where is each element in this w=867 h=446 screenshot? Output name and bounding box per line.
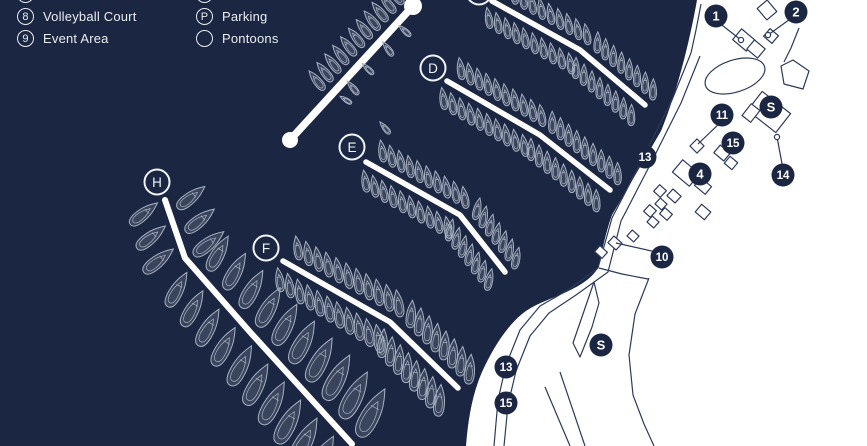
marker-2-1: 2 — [785, 1, 808, 24]
building — [695, 204, 711, 219]
legend-pontoon-icon — [196, 30, 213, 47]
building — [627, 230, 639, 242]
legend-label: Event Area — [43, 31, 109, 46]
marker-14-7: 14 — [772, 164, 795, 187]
pontoon-letter: F — [262, 241, 270, 256]
roundabout — [701, 51, 770, 101]
leader-dot — [738, 37, 743, 42]
leader-line — [616, 243, 656, 252]
legend-column-left: 8 Volleyball Court 9 Event Area — [17, 0, 137, 50]
legend-item-event-area: 9 Event Area — [17, 28, 137, 49]
marker-4-6: 4 — [689, 163, 712, 186]
legend-symbol-partial-icon — [196, 0, 213, 3]
pontoon-letter: E — [347, 140, 356, 155]
marker-1-0: 1 — [705, 5, 728, 28]
pontoon-letter: H — [152, 175, 162, 190]
road — [629, 278, 654, 446]
marker-13-5: 13 — [634, 146, 657, 169]
marker-label: 1 — [712, 9, 719, 24]
pontoon-label-D: D — [421, 56, 446, 81]
road — [545, 387, 570, 446]
building — [647, 216, 659, 228]
building — [644, 205, 657, 218]
pier-end-dolphin — [282, 132, 298, 148]
marker-label: 11 — [716, 110, 729, 122]
legend-number-icon: 8 — [17, 8, 34, 25]
pontoon-label-F: F — [254, 236, 279, 261]
marker-15-11: 15 — [495, 392, 518, 415]
marker-label: 10 — [656, 252, 669, 264]
marker-label: 14 — [777, 170, 790, 182]
pontoon-label-H: H — [145, 170, 170, 195]
building — [608, 236, 622, 250]
legend-item-volleyball-court: 8 Volleyball Court — [17, 6, 137, 27]
building — [781, 60, 809, 89]
pontoon-letter: D — [428, 61, 438, 76]
legend-label: Parking — [222, 9, 267, 24]
marina-map-svg: 1211S151341410S1315DEFH — [0, 0, 867, 446]
marker-label: S — [767, 100, 776, 115]
leader-dot — [765, 32, 770, 37]
building — [654, 185, 667, 198]
legend-label: Pontoons — [222, 31, 279, 46]
marker-15-4: 15 — [722, 132, 745, 155]
marker-label: 15 — [727, 138, 740, 150]
legend-item-partial — [17, 0, 137, 5]
marker-label: 4 — [696, 167, 704, 182]
legend-column-right: P Parking Pontoons — [196, 0, 279, 50]
pontoon-label-E: E — [340, 135, 365, 160]
legend-symbol-partial-icon — [17, 0, 34, 3]
marker-label: S — [597, 338, 606, 353]
legend-item-partial — [196, 0, 279, 5]
marker-13-10: 13 — [495, 356, 518, 379]
legend-item-pontoons: Pontoons — [196, 28, 279, 49]
legend-label: Volleyball Court — [43, 9, 137, 24]
marker-S-3: S — [760, 96, 783, 119]
marker-label: 13 — [500, 362, 513, 374]
building — [667, 189, 681, 203]
legend-parking-icon: P — [196, 8, 213, 25]
building — [690, 139, 704, 153]
legend-item-parking: P Parking — [196, 6, 279, 27]
marker-S-9: S — [590, 334, 613, 357]
building — [757, 0, 777, 20]
marker-11-2: 11 — [711, 104, 734, 127]
road — [560, 372, 585, 446]
marker-label: 15 — [500, 398, 513, 410]
road — [784, 28, 799, 62]
legend-number-icon: 9 — [17, 30, 34, 47]
water-area — [0, 0, 697, 446]
marina-map: 1211S151341410S1315DEFH 8 Volleyball Cou… — [0, 0, 867, 446]
marker-label: 13 — [639, 152, 652, 164]
marker-label: 2 — [792, 5, 799, 20]
leader-dot — [774, 134, 779, 139]
marker-10-8: 10 — [651, 246, 674, 269]
